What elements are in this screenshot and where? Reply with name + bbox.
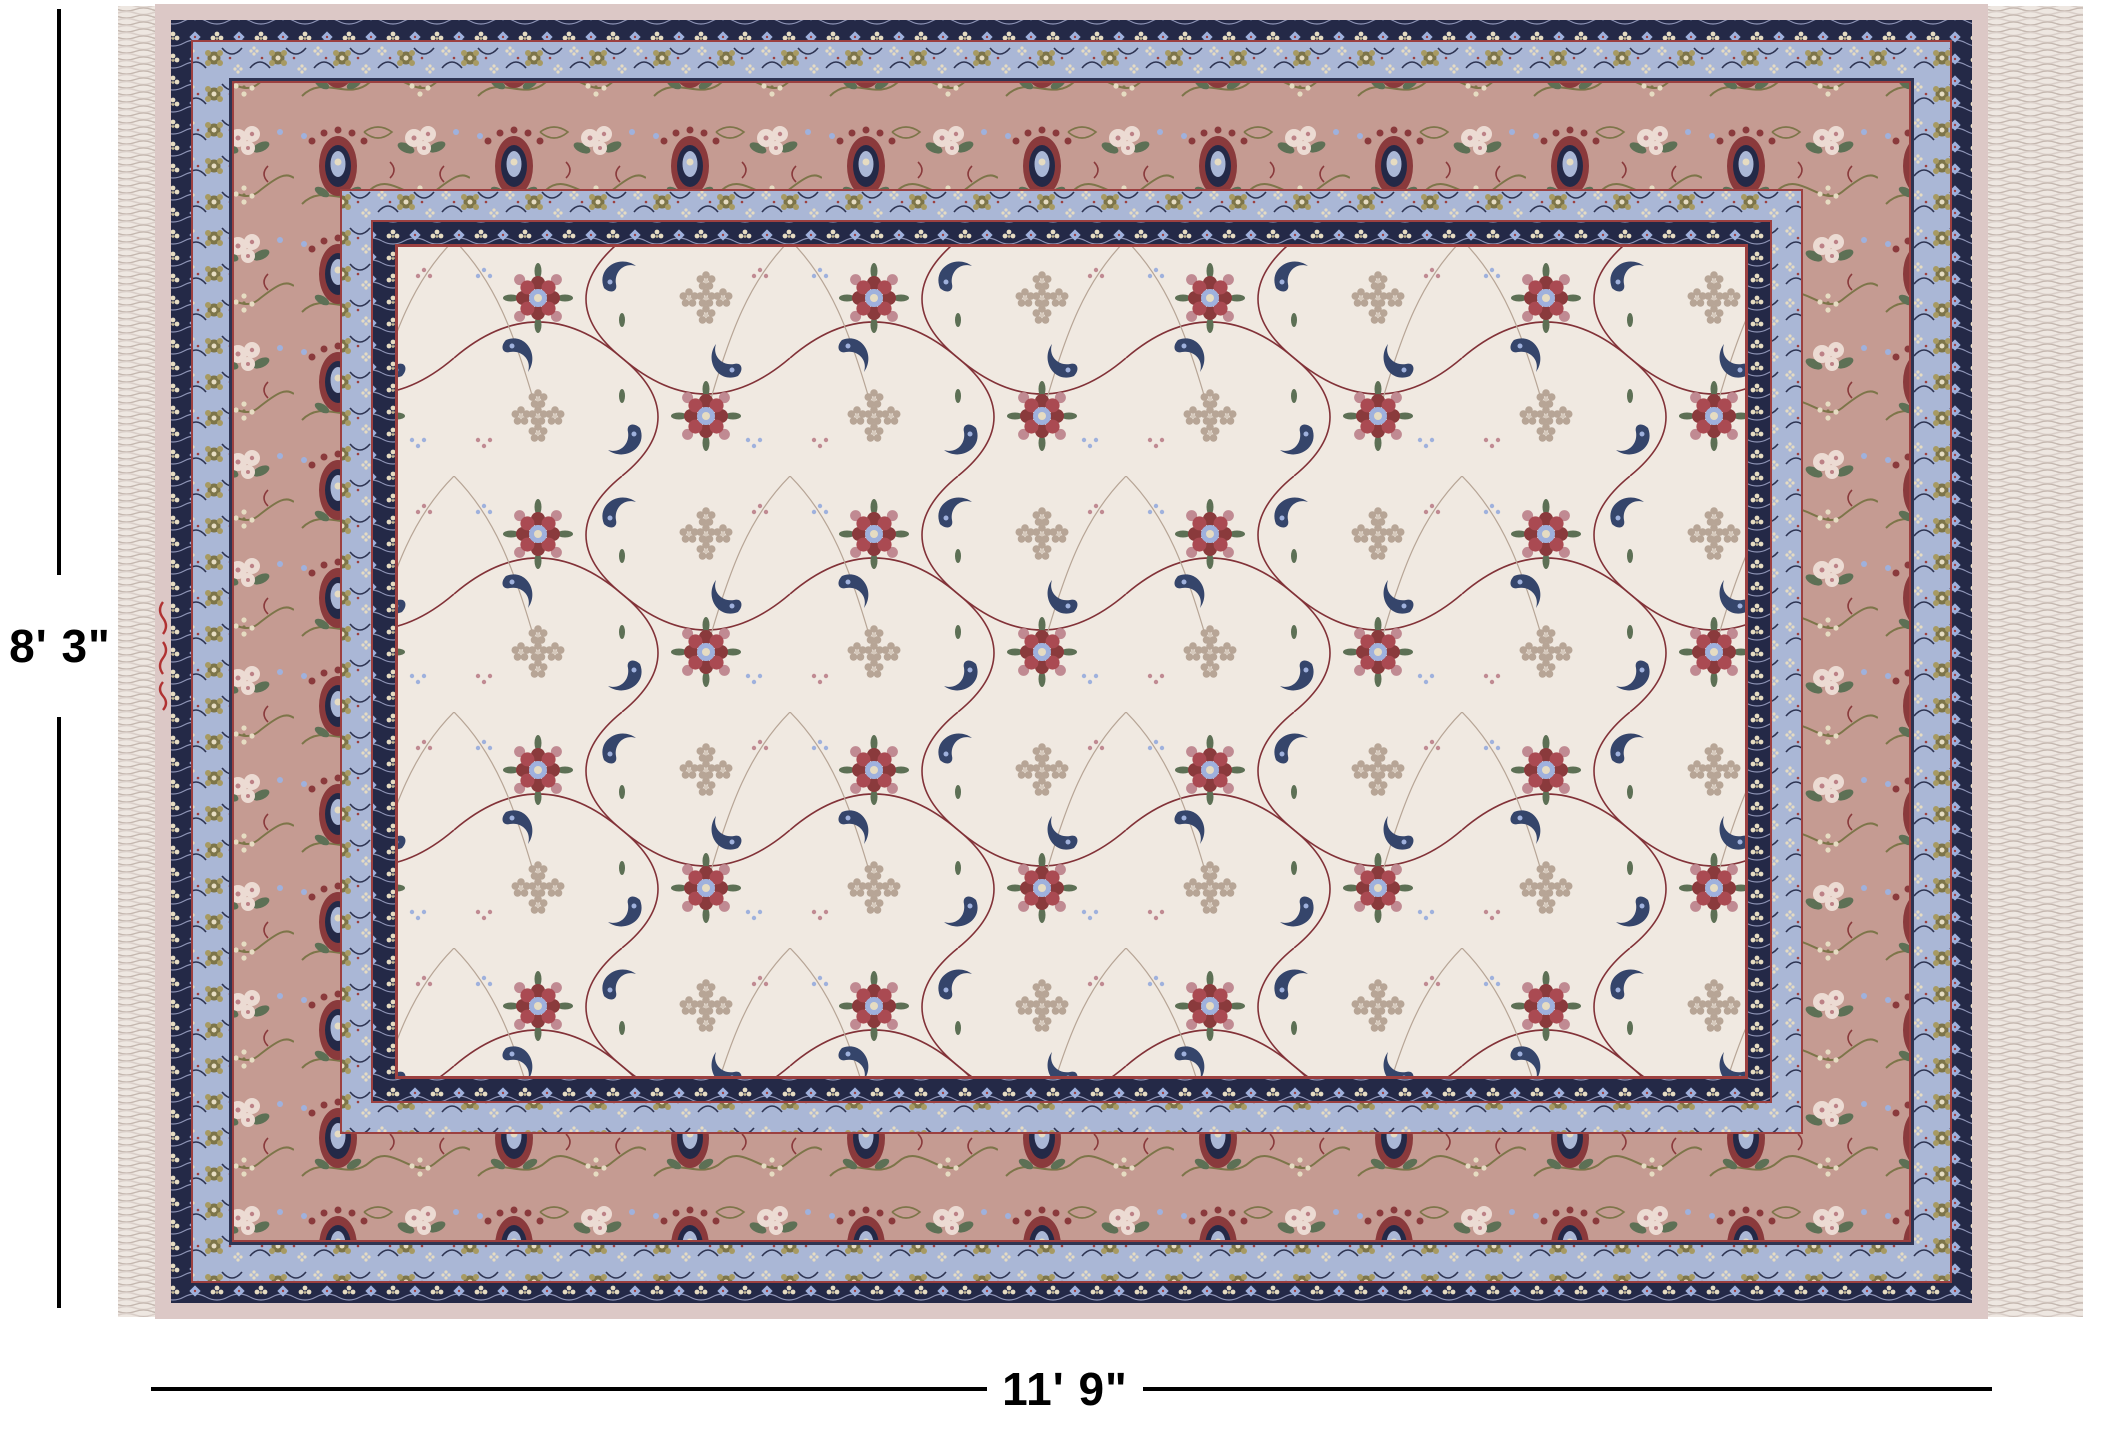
product-image-canvas: 8' 3" 11' 9": [0, 0, 2106, 1453]
rug-right-fringe: [1988, 6, 2083, 1317]
dimension-height-line-lower: [57, 717, 61, 1308]
rug-field: [398, 247, 1745, 1076]
dimension-height-line-upper: [57, 9, 61, 575]
dimension-width-line-right: [1143, 1387, 1992, 1391]
dimension-width-label: 11' 9": [1002, 1362, 1128, 1416]
rug-left-fringe: [118, 6, 155, 1317]
dimension-width-line-left: [151, 1387, 987, 1391]
dimension-height-label: 8' 3": [9, 619, 111, 673]
rug-photo: [118, 4, 2088, 1319]
